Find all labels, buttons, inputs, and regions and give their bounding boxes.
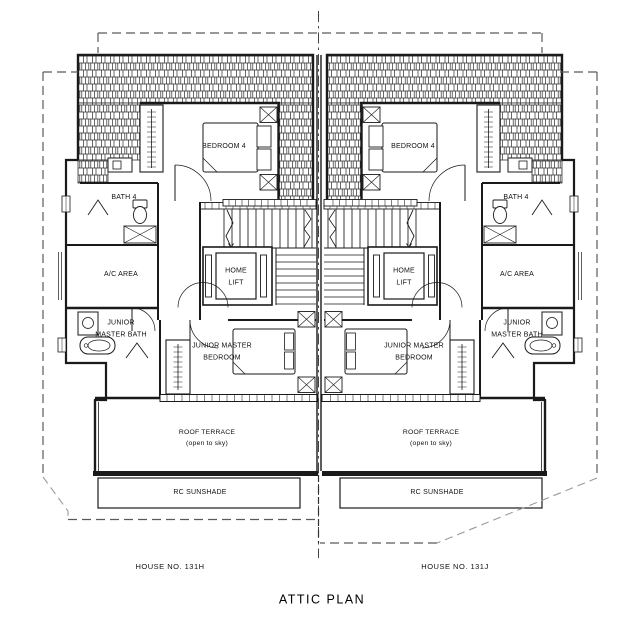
label-roof-terrace-right: ROOF TERRACE (open to sky) (403, 427, 459, 449)
house-number-131H: HOUSE NO. 131H (135, 561, 204, 573)
label-rc-sunshade-right: RC SUNSHADE (410, 487, 463, 499)
label-junior-master-bath-left: JUNIOR MASTER BATH (95, 317, 146, 340)
house-number-131J: HOUSE NO. 131J (421, 561, 488, 573)
label-ac-area-right: A/C AREA (500, 269, 534, 281)
label-bedroom4-right: BEDROOM 4 (391, 141, 435, 153)
label-home-lift-left: HOME LIFT (225, 265, 247, 288)
label-junior-master-bedroom-left: JUNIOR MASTER BEDROOM (192, 340, 252, 363)
label-junior-master-bath-right: JUNIOR MASTER BATH (491, 317, 542, 340)
label-rc-sunshade-left: RC SUNSHADE (173, 487, 226, 499)
label-ac-area-left: A/C AREA (104, 269, 138, 281)
label-bath4-left: BATH 4 (111, 192, 136, 204)
label-roof-terrace-left: ROOF TERRACE (open to sky) (179, 427, 235, 449)
property-boundary-diagonals (43, 477, 597, 543)
label-bedroom4-left: BEDROOM 4 (202, 141, 246, 153)
label-bath4-right: BATH 4 (503, 192, 528, 204)
page-title: ATTIC PLAN (279, 590, 365, 611)
attic-floor-plan: BEDROOM 4 BATH 4 A/C AREA HOME LIFT JUNI… (0, 0, 640, 640)
label-home-lift-right: HOME LIFT (393, 265, 415, 288)
label-junior-master-bedroom-right: JUNIOR MASTER BEDROOM (384, 340, 444, 363)
